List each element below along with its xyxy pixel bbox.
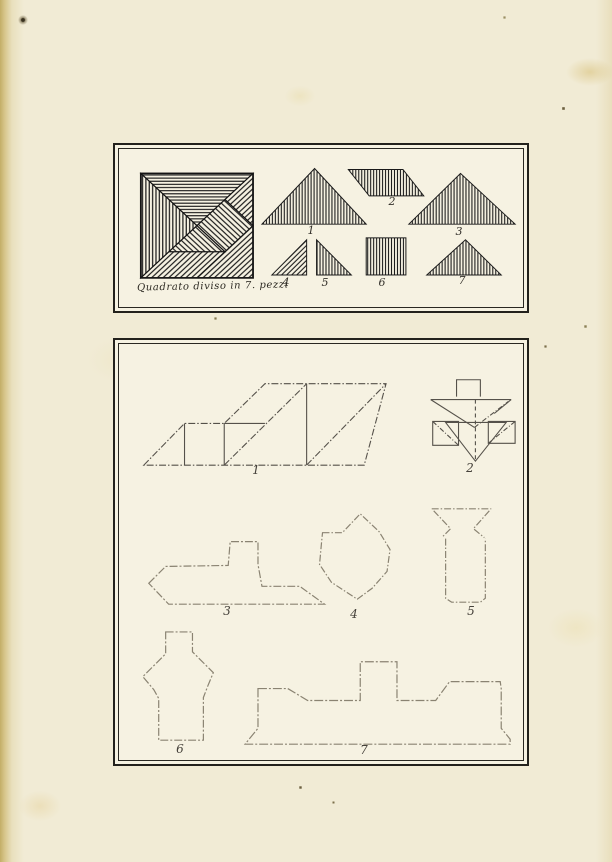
plate-bottom-frame: 1 2 3 4 5 6 7 bbox=[113, 338, 529, 766]
piece-label-2: 2 bbox=[389, 196, 396, 207]
paper-specks bbox=[0, 0, 1, 1]
piece-3-large-triangle bbox=[409, 173, 515, 224]
figure-label-5: 5 bbox=[467, 605, 475, 617]
figure-4-gem bbox=[320, 514, 390, 599]
piece-7-medium-triangle bbox=[427, 240, 501, 275]
figure-5-vase bbox=[432, 509, 492, 602]
piece-4-small-triangle bbox=[272, 240, 307, 275]
piece-1-large-triangle bbox=[262, 169, 366, 225]
figure-7-steamboat bbox=[245, 662, 510, 744]
figure-label-4: 4 bbox=[350, 608, 358, 620]
figure-3-boat bbox=[149, 542, 325, 605]
figure-2-arrow bbox=[431, 380, 515, 461]
piece-label-6: 6 bbox=[379, 277, 386, 288]
piece-6-square bbox=[366, 238, 406, 275]
figure-1-parallelograms bbox=[144, 384, 386, 465]
piece-label-5: 5 bbox=[322, 277, 329, 288]
figure-label-1: 1 bbox=[252, 464, 260, 476]
piece-label-3: 3 bbox=[456, 226, 463, 237]
tangram-square-figure bbox=[141, 173, 253, 277]
piece-2-parallelogram bbox=[348, 170, 423, 196]
piece-label-1: 1 bbox=[308, 225, 315, 236]
figure-label-6: 6 bbox=[176, 743, 184, 755]
figure-6-cross bbox=[143, 632, 213, 740]
plate-top-frame: 1 2 3 4 5 6 7 Quadrato diviso in 7. pezz… bbox=[113, 143, 529, 313]
piece-label-7: 7 bbox=[459, 275, 466, 286]
piece-5-small-triangle bbox=[317, 240, 352, 275]
tangram-figures-drawing bbox=[119, 344, 531, 768]
figure-label-2: 2 bbox=[466, 462, 474, 474]
scanned-book-page: 1 2 3 4 5 6 7 Quadrato diviso in 7. pezz… bbox=[0, 0, 612, 862]
figure-label-3: 3 bbox=[223, 605, 231, 617]
figure-label-7: 7 bbox=[360, 744, 368, 756]
